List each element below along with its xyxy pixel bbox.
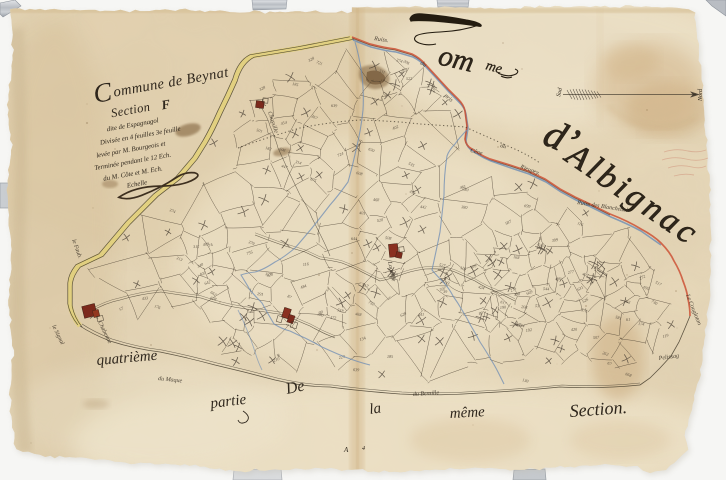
- svg-text:401: 401: [359, 210, 366, 216]
- svg-text:Nord: Nord: [698, 88, 704, 102]
- svg-text:433: 433: [142, 295, 149, 301]
- svg-text:639: 639: [331, 103, 338, 108]
- svg-text:204: 204: [521, 304, 528, 310]
- svg-text:644: 644: [351, 236, 357, 241]
- svg-text:442: 442: [420, 204, 427, 210]
- svg-text:544: 544: [543, 286, 550, 291]
- svg-text:441: 441: [418, 312, 425, 317]
- svg-text:la: la: [368, 400, 382, 417]
- svg-text:185: 185: [387, 354, 393, 359]
- svg-text:315: 315: [193, 244, 199, 249]
- svg-text:Section.: Section.: [569, 397, 628, 421]
- svg-text:639: 639: [353, 367, 360, 372]
- svg-text:53: 53: [535, 303, 540, 308]
- svg-text:61: 61: [626, 317, 630, 322]
- svg-text:174: 174: [638, 321, 645, 327]
- svg-text:522: 522: [406, 76, 412, 81]
- svg-text:même: même: [449, 404, 485, 422]
- svg-text:A: A: [343, 446, 349, 454]
- svg-text:291: 291: [257, 291, 264, 297]
- svg-text:472: 472: [330, 315, 336, 320]
- svg-text:468: 468: [373, 197, 380, 202]
- svg-text:4: 4: [362, 445, 365, 452]
